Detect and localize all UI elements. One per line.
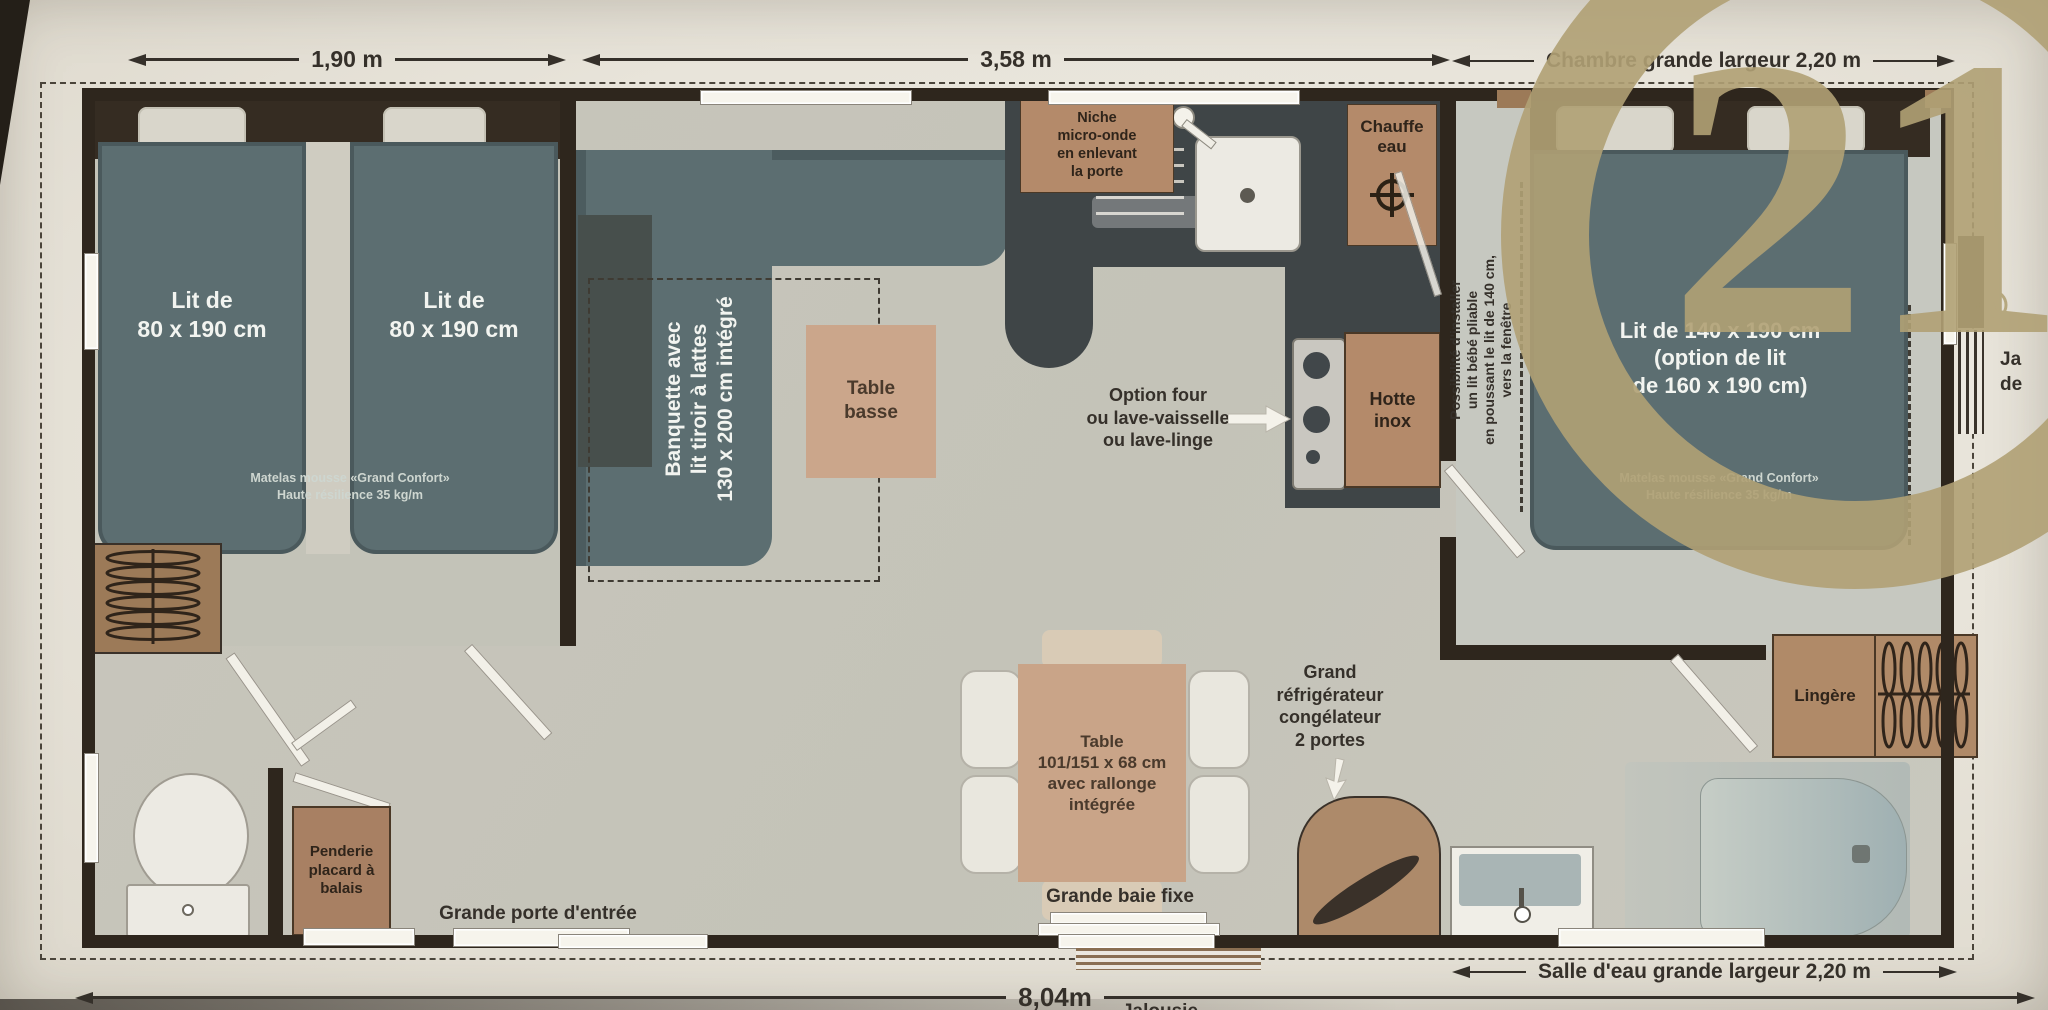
jalousie-cutoff-label: Jalousie <box>1060 1001 1260 1010</box>
arrowhead <box>1452 966 1470 978</box>
century21-logo: 21 R <box>1430 0 2048 620</box>
jalousie-cutoff-text: Jalousie <box>1122 1001 1198 1010</box>
bay-window <box>1058 934 1215 949</box>
floor-plan-scan: Lit de 80 x 190 cm Lit de 80 x 190 cm Ma… <box>0 0 2048 1010</box>
entrance-door-leaf <box>558 934 708 949</box>
window-top-kitchen <box>1048 90 1300 105</box>
dimension-bathroom-value: Salle d'eau grande largeur 2,20 m <box>1526 960 1883 984</box>
jalousie-slats <box>1076 948 1261 970</box>
window-top-living <box>700 90 912 105</box>
dimension-living-value: 3,58 m <box>968 46 1064 73</box>
arrowhead <box>75 992 93 1004</box>
window-bottom-left <box>303 928 415 946</box>
arrowhead <box>1939 966 1957 978</box>
arrowhead <box>548 54 566 66</box>
dimension-living: 3,58 m <box>582 46 1450 73</box>
window-left-wc <box>84 753 99 863</box>
window-bathroom <box>1558 928 1765 947</box>
dimension-total: 8,04m <box>75 982 2035 1010</box>
arrowhead <box>582 54 600 66</box>
dimension-room1: 1,90 m <box>128 46 566 73</box>
logo-number: 21 <box>1668 0 2048 419</box>
dimension-bathroom: Salle d'eau grande largeur 2,20 m <box>1452 960 1957 984</box>
arrowhead <box>2017 992 2035 1004</box>
entrance-label-text: Grande porte d'entrée <box>439 903 637 925</box>
photo-corner-shadow <box>0 0 30 185</box>
dimension-room1-value: 1,90 m <box>299 46 395 73</box>
entrance-label: Grande porte d'entrée <box>438 903 638 925</box>
window-left-bedroom <box>84 253 99 350</box>
bay-window-label-text: Grande baie fixe <box>1046 886 1194 908</box>
logo-registered-icon: R <box>1986 297 1998 316</box>
bay-window-label: Grande baie fixe <box>1030 886 1210 908</box>
arrowhead <box>128 54 146 66</box>
